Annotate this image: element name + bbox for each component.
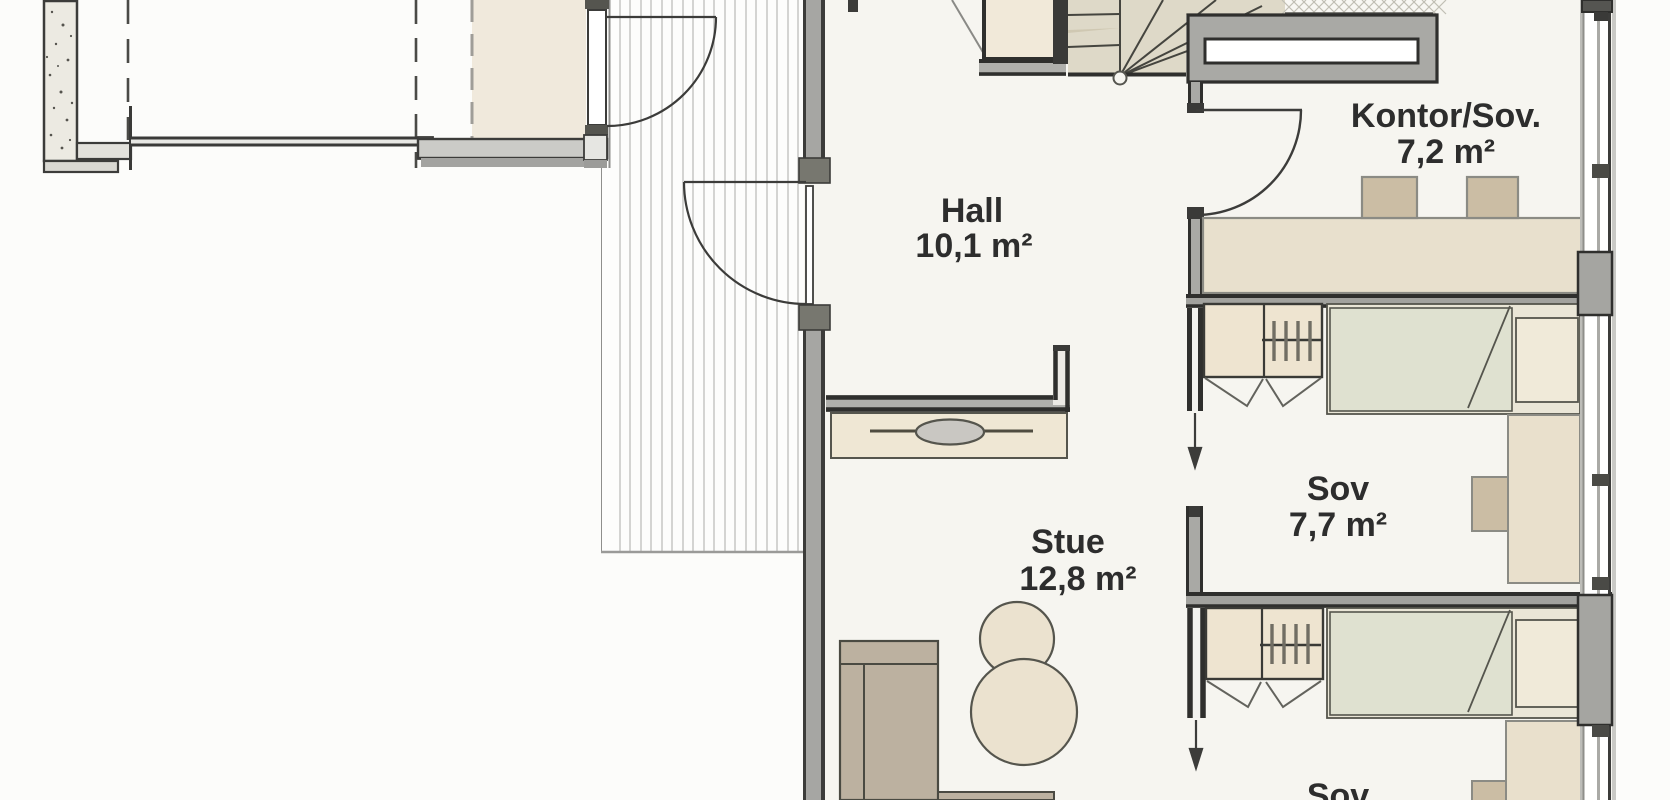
svg-text:12,8 m²: 12,8 m² bbox=[1019, 560, 1136, 598]
svg-text:7,2 m²: 7,2 m² bbox=[1397, 133, 1495, 171]
svg-text:Hall: Hall bbox=[941, 192, 1003, 230]
svg-text:7,7 m²: 7,7 m² bbox=[1289, 506, 1387, 544]
svg-text:Stue: Stue bbox=[1031, 523, 1105, 561]
svg-text:Kontor/Sov.: Kontor/Sov. bbox=[1351, 97, 1541, 135]
svg-text:Sov: Sov bbox=[1307, 777, 1369, 800]
svg-text:10,1 m²: 10,1 m² bbox=[915, 227, 1032, 265]
svg-text:Sov: Sov bbox=[1307, 470, 1369, 508]
